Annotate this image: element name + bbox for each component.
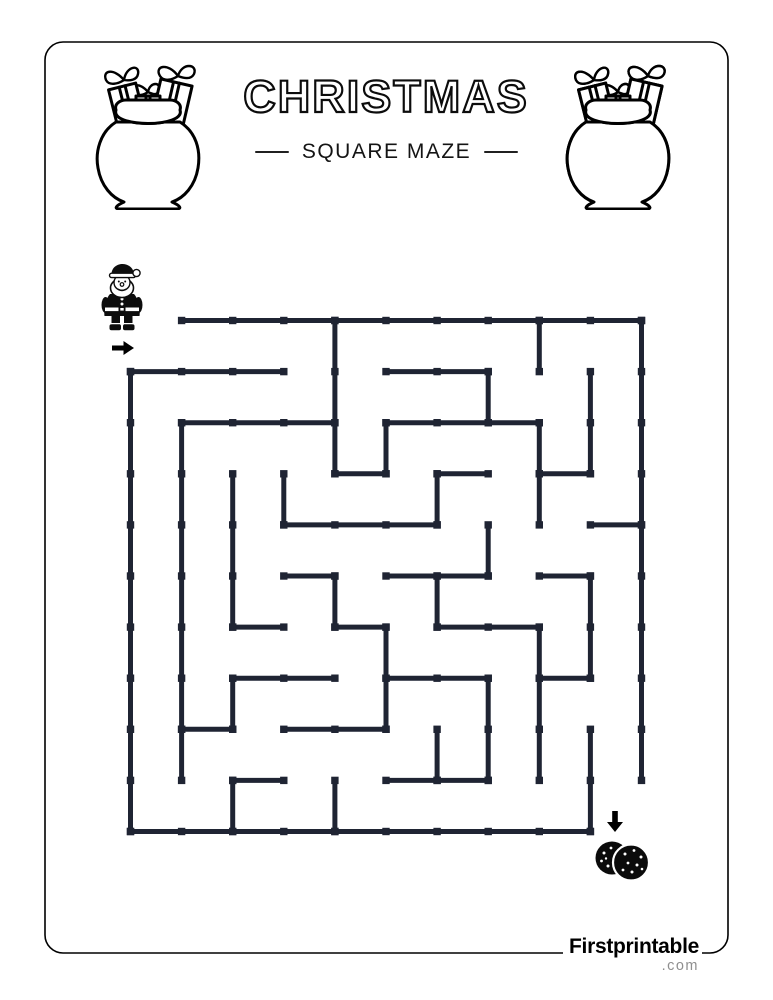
subtitle-text: SQUARE MAZE — [302, 140, 471, 164]
brand-block: Firstprintable .com — [569, 936, 699, 974]
brand-domain-suffix: .com — [569, 959, 699, 974]
subtitle-rule-right — [484, 151, 518, 153]
page-title: CHRISTMAS — [0, 68, 773, 124]
brand-name: Firstprintable — [569, 936, 699, 958]
subtitle-rule-left — [255, 151, 289, 153]
subtitle-block: SQUARE MAZE — [0, 140, 773, 164]
cookies-icon — [592, 839, 654, 883]
maze-svg — [125, 315, 647, 837]
down-arrow-icon — [605, 809, 625, 834]
title-text: CHRISTMAS — [243, 71, 529, 122]
worksheet-page: CHRISTMAS SQUARE MAZE — [0, 0, 773, 1000]
title-block: CHRISTMAS — [0, 68, 773, 124]
